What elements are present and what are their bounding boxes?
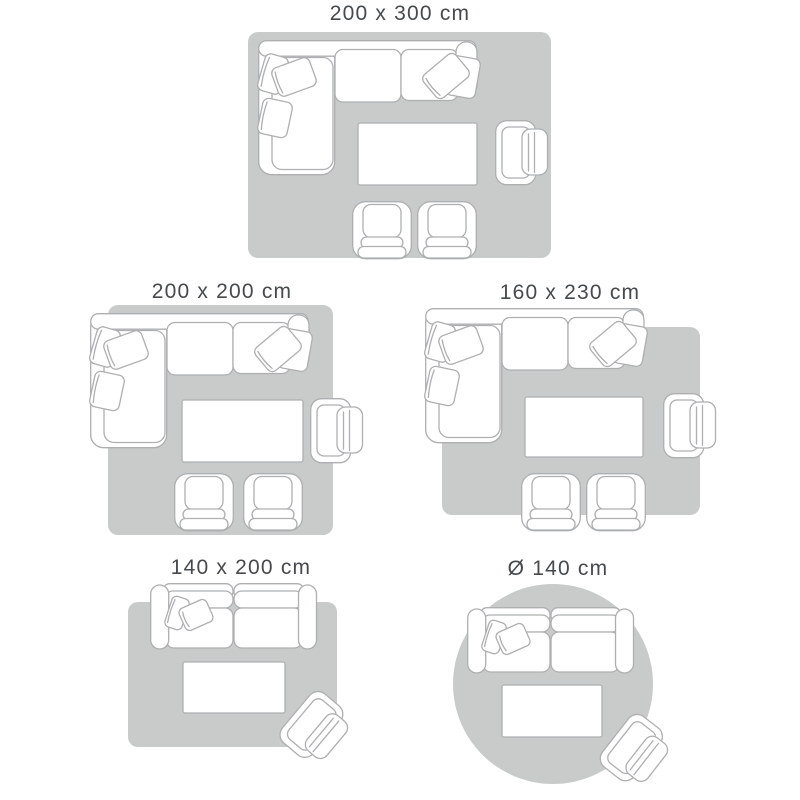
size-label-140x200: 140 x 200 cm — [171, 556, 311, 580]
armchair-icon — [496, 121, 548, 185]
coffee-table-icon — [183, 662, 285, 713]
club-chair-right-icon — [587, 474, 646, 531]
armchair-icon — [311, 399, 363, 463]
club-chair-left-icon — [175, 474, 234, 531]
rug-size-guide: 200 x 300 cm 200 x 200 cm 160 x 230 cm 1… — [0, 0, 800, 800]
size-label-round-140: Ø 140 cm — [508, 557, 609, 581]
coffee-table-icon — [358, 123, 477, 185]
two-seat-sofa-icon — [468, 608, 634, 673]
club-chair-right-icon — [418, 202, 477, 259]
panel-round-140 — [453, 584, 676, 792]
panel-140x200 — [128, 584, 356, 770]
coffee-table-icon — [502, 685, 602, 737]
club-chair-left-icon — [522, 474, 581, 531]
club-chair-left-icon — [353, 202, 412, 259]
panel-200x200 — [88, 305, 362, 535]
club-chair-right-icon — [244, 474, 303, 531]
panel-200x300 — [248, 32, 551, 259]
size-label-200x300: 200 x 300 cm — [330, 2, 470, 26]
coffee-table-icon — [525, 397, 643, 457]
armchair-icon — [664, 394, 716, 458]
panel-160x230 — [423, 309, 715, 531]
coffee-table-icon — [182, 400, 303, 462]
two-seat-sofa-icon — [151, 584, 317, 649]
size-label-200x200: 200 x 200 cm — [152, 280, 292, 304]
size-guide-illustration — [0, 0, 800, 800]
size-label-160x230: 160 x 230 cm — [500, 281, 640, 305]
